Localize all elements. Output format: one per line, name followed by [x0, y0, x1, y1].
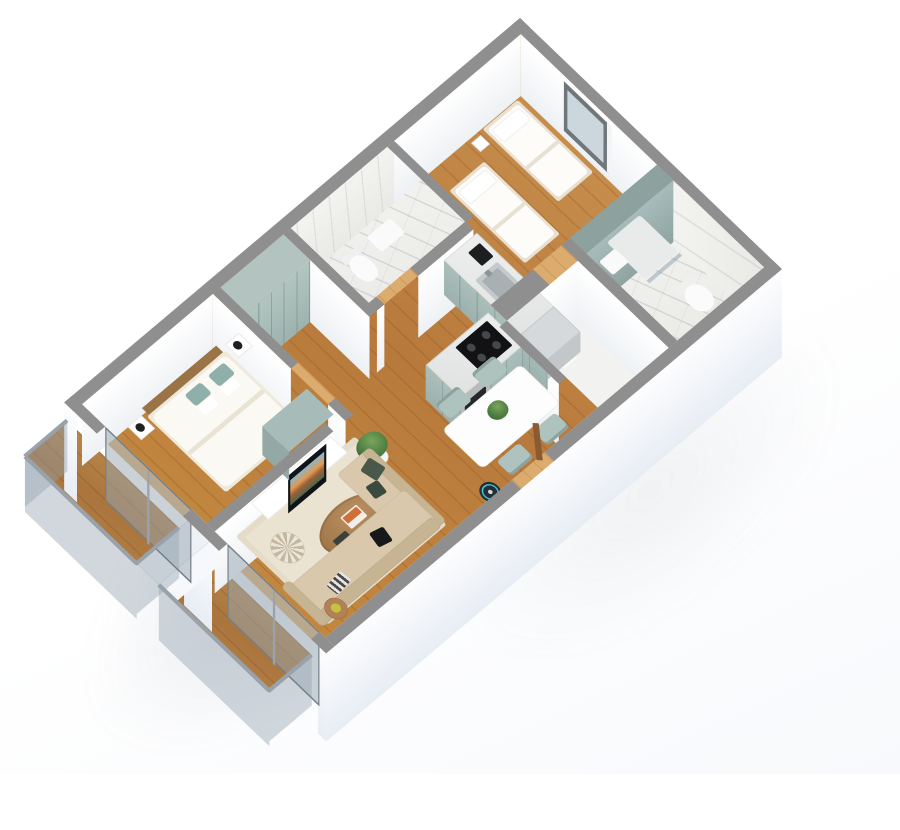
window-sill: [607, 122, 612, 176]
duvet-fold: [492, 202, 526, 231]
wall-face-bath-large-se-b: [377, 304, 384, 372]
door-mullion: [147, 469, 149, 546]
door-mullion: [273, 589, 275, 666]
floorplan-scene: 3D isometric floor plan render of a two-…: [0, 0, 900, 774]
duvet-fold: [525, 141, 559, 170]
